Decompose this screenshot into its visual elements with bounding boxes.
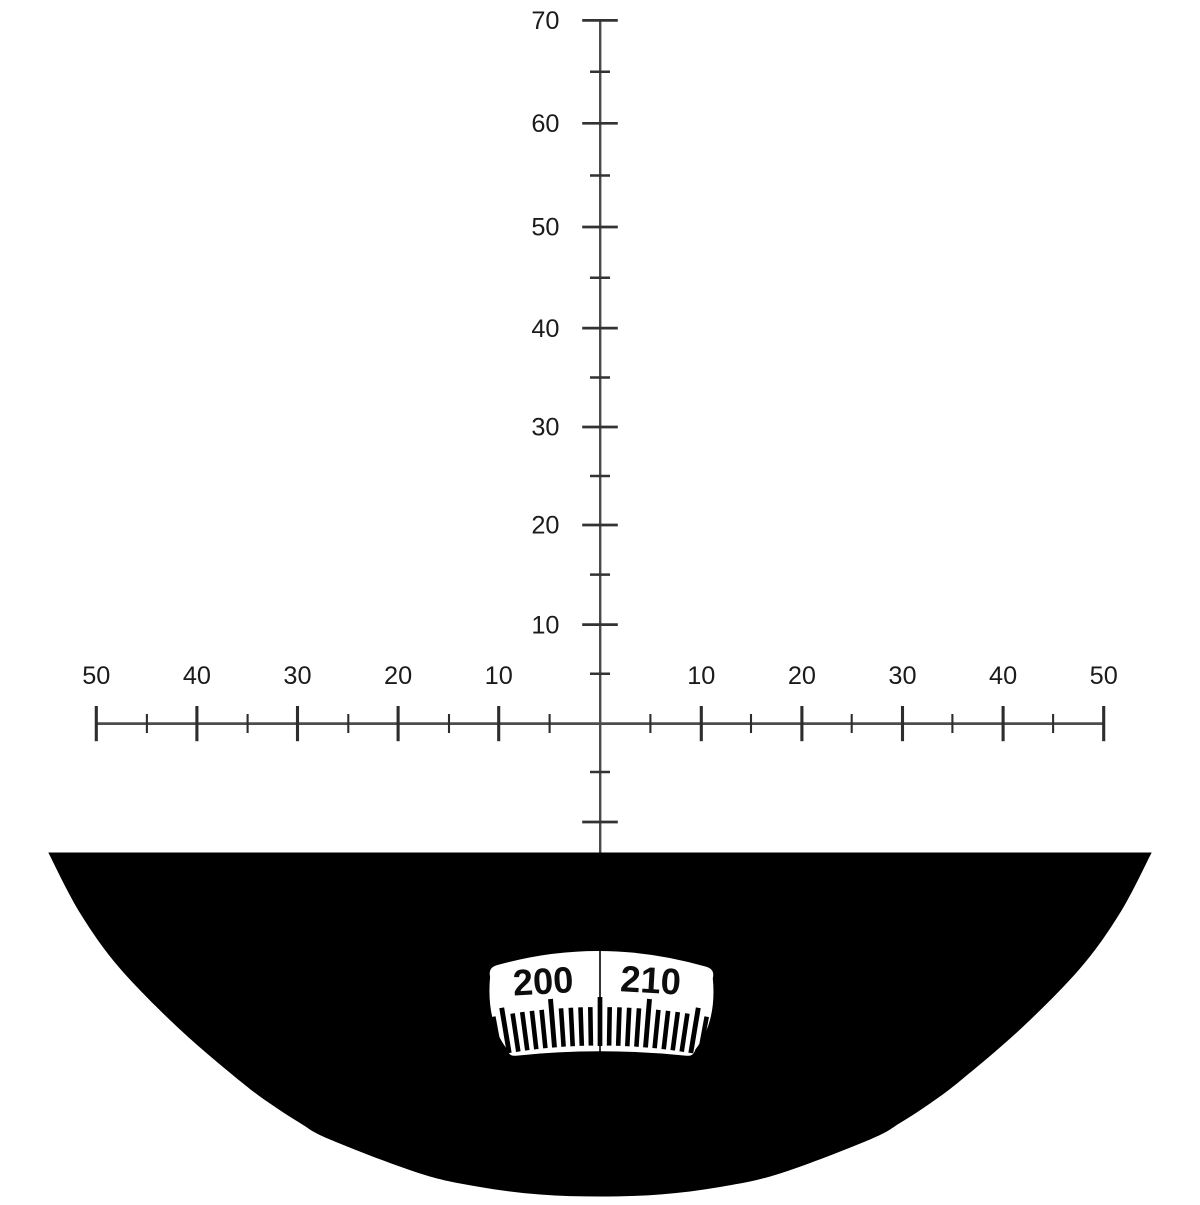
svg-text:40: 40: [531, 315, 559, 343]
svg-text:10: 10: [687, 662, 715, 690]
svg-text:20: 20: [788, 662, 816, 690]
svg-text:30: 30: [283, 662, 311, 690]
svg-text:210: 210: [619, 958, 682, 1002]
svg-text:10: 10: [531, 611, 559, 639]
svg-text:50: 50: [531, 214, 559, 242]
svg-text:60: 60: [531, 110, 559, 138]
svg-text:10: 10: [485, 662, 513, 690]
svg-text:50: 50: [1090, 662, 1118, 690]
svg-text:70: 70: [531, 7, 559, 35]
svg-text:30: 30: [888, 662, 916, 690]
svg-text:200: 200: [512, 959, 575, 1003]
svg-text:40: 40: [989, 662, 1017, 690]
svg-text:20: 20: [384, 662, 412, 690]
svg-text:50: 50: [82, 662, 110, 690]
svg-text:40: 40: [183, 662, 211, 690]
svg-text:30: 30: [531, 414, 559, 442]
svg-text:20: 20: [531, 512, 559, 540]
